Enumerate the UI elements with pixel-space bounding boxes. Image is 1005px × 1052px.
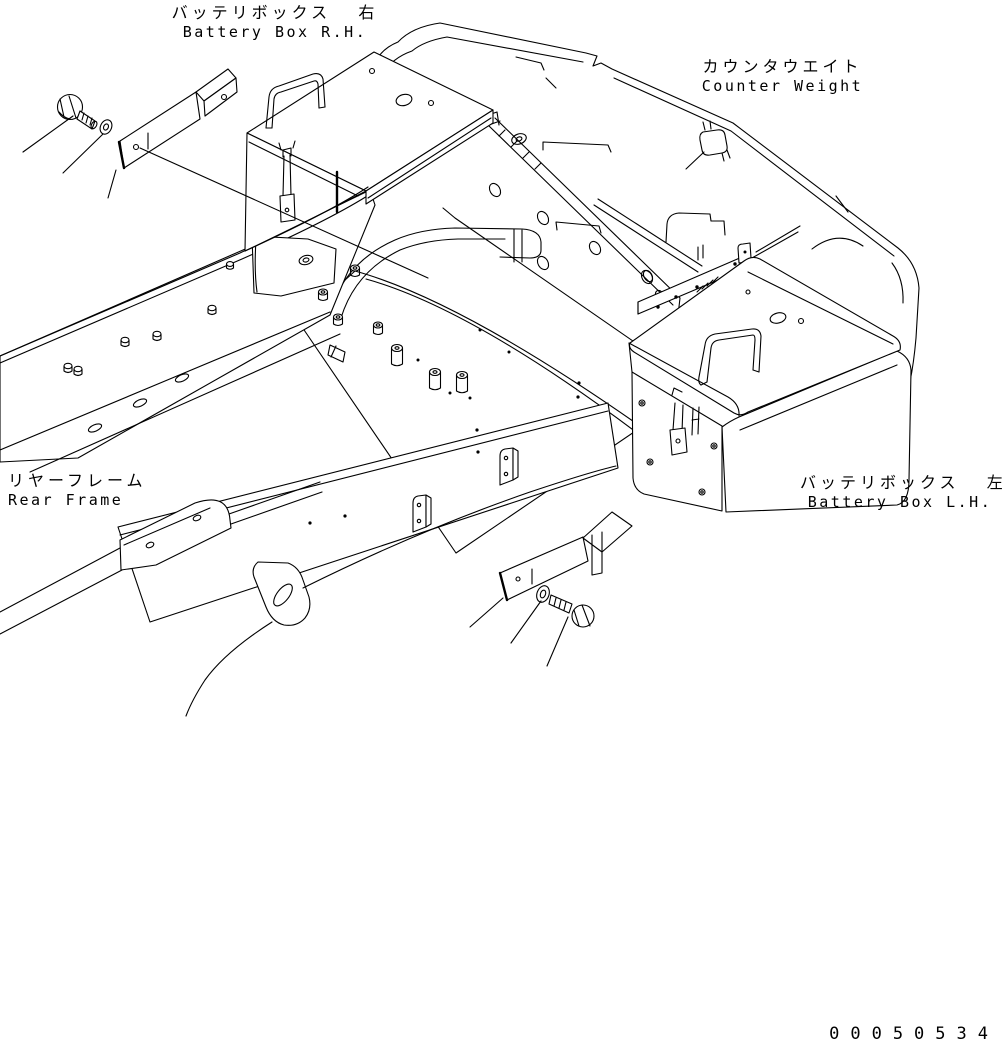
battery-box-rh <box>245 52 493 251</box>
frame-wall <box>443 118 680 368</box>
label-battery-box-lh: バッテリボックス 左 Battery Box L.H. <box>800 473 1000 512</box>
bolt-top-left <box>58 95 99 130</box>
washer-bottom <box>534 584 551 604</box>
washer-top-left <box>98 118 114 136</box>
line-art <box>0 0 1005 1052</box>
label-counter-weight-jp: カウンタウエイト <box>695 57 870 77</box>
label-rear-frame: リヤーフレーム Rear Frame <box>8 471 208 510</box>
label-battery-box-lh-en: Battery Box L.H. <box>800 493 1000 512</box>
parts-diagram-page: バッテリボックス 右 Battery Box R.H. カウンタウエイト Cou… <box>0 0 1005 1052</box>
mount-bracket-bottom <box>500 512 632 600</box>
label-battery-box-rh: バッテリボックス 右 Battery Box R.H. <box>160 3 390 42</box>
counterweight-clip <box>686 121 730 169</box>
label-battery-box-lh-jp: バッテリボックス 左 <box>800 473 1000 493</box>
label-rear-frame-jp: リヤーフレーム <box>8 471 208 491</box>
label-battery-box-rh-jp: バッテリボックス 右 <box>160 3 390 23</box>
label-rear-frame-en: Rear Frame <box>8 491 208 510</box>
label-counter-weight: カウンタウエイト Counter Weight <box>695 57 870 96</box>
mount-bracket-top-left <box>119 69 237 168</box>
label-counter-weight-en: Counter Weight <box>695 77 870 96</box>
bolt-bottom <box>549 595 594 627</box>
label-battery-box-rh-en: Battery Box R.H. <box>160 23 390 42</box>
drawing-number: 00050534 <box>829 1024 999 1044</box>
